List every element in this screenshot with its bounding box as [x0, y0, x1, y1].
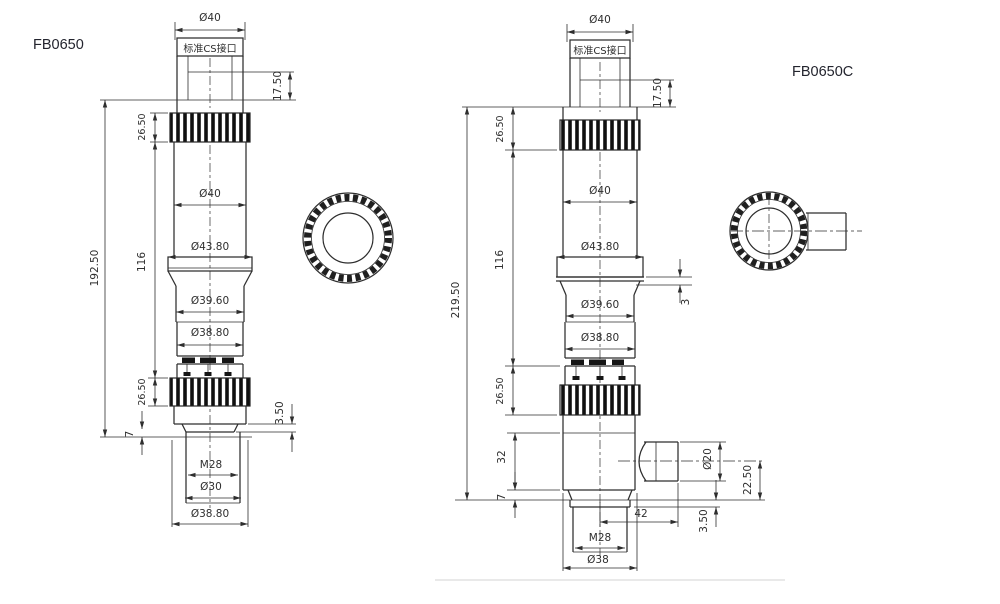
- dim-l-cs-mount: 标准CS接口: [183, 42, 236, 55]
- dim-r-tube-length: 42: [634, 508, 647, 520]
- fb0650c-iris-ring: [560, 385, 640, 415]
- dim-l-top-knurl: 26.50: [137, 113, 148, 140]
- dim-r-ring-diameter: Ø39.60: [581, 299, 619, 311]
- fb0650-iris-ring: [170, 378, 250, 406]
- dim-r-top-diameter: Ø40: [589, 14, 611, 26]
- dim-l-bottom-knurl: 26.50: [137, 378, 148, 405]
- dim-l-lip: 3.50: [274, 401, 286, 424]
- dim-r-lower-body: 32: [496, 450, 508, 463]
- dim-r-thread: M28: [589, 532, 611, 544]
- fb0650-front-view: [303, 193, 393, 283]
- dim-r-lower-diameter: Ø38.80: [581, 332, 619, 344]
- fb0650-side-view: FB0650 Ø40 标准CS接口 17.50 26.50 Ø40: [33, 12, 296, 527]
- dim-l-bore: Ø30: [200, 481, 222, 493]
- fb0650c-focus-ring: [560, 120, 640, 150]
- dim-l-cs-depth: 17.50: [272, 71, 284, 101]
- dim-r-flange-diameter: Ø43.80: [581, 241, 619, 253]
- fb0650-label: FB0650: [33, 37, 84, 53]
- dim-l-lower-diameter: Ø38.80: [191, 327, 229, 339]
- dim-r-overall: 219.50: [450, 282, 462, 319]
- dim-l-top-diameter: Ø40: [199, 12, 221, 24]
- dim-l-base-diameter: Ø38.80: [191, 508, 229, 520]
- dim-r-base-h: 7: [496, 494, 508, 501]
- dim-r-cs-mount: 标准CS接口: [573, 44, 626, 57]
- drawing-page: FB0650 Ø40 标准CS接口 17.50 26.50 Ø40: [0, 0, 1000, 604]
- dim-l-body-diameter: Ø40: [199, 188, 221, 200]
- dim-r-tube-diameter: Ø20: [702, 448, 714, 470]
- dim-r-tube-center: 22.50: [742, 465, 754, 495]
- dim-r-bottom-knurl: 26.50: [495, 377, 506, 404]
- fb0650c-front-view: [730, 192, 862, 270]
- dim-l-thread: M28: [200, 459, 222, 471]
- fb0650-focus-ring: [170, 113, 250, 142]
- fb0650c-side-view: FB0650C Ø40 标准CS接口 17.50 26.50 Ø40 Ø43.8: [450, 14, 853, 571]
- dim-r-flange-step: 3: [680, 299, 692, 306]
- dim-r-base-diameter: Ø38: [587, 554, 609, 566]
- dim-l-mid-h: 116: [136, 252, 148, 272]
- dim-l-flange-diameter: Ø43.80: [191, 241, 229, 253]
- dim-r-cs-depth: 17.50: [652, 78, 664, 108]
- dim-l-base-h: 7: [124, 431, 136, 438]
- dim-r-top-knurl: 26.50: [495, 115, 506, 142]
- technical-drawing: FB0650 Ø40 标准CS接口 17.50 26.50 Ø40: [0, 0, 1000, 604]
- dim-r-body-diameter: Ø40: [589, 185, 611, 197]
- dim-l-ring-diameter: Ø39.60: [191, 295, 229, 307]
- dim-r-lip: 3.50: [698, 509, 710, 532]
- fb0650c-label: FB0650C: [792, 64, 853, 80]
- dim-r-mid-h: 116: [494, 250, 506, 270]
- dim-l-overall: 192.50: [89, 250, 101, 287]
